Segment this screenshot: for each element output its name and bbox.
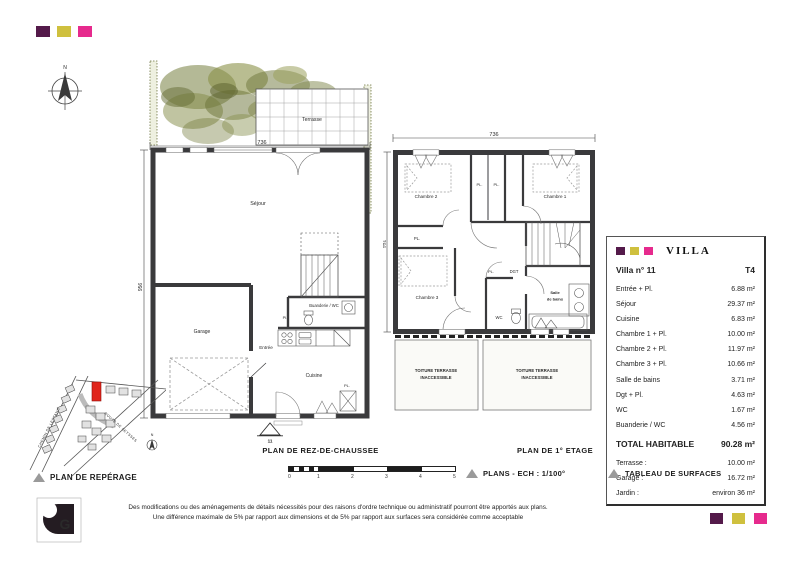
- row-value: 1.67 m²: [731, 407, 755, 414]
- table-row: Chambre 2 + Pl.11.97 m²: [616, 346, 755, 353]
- row-label: Jardin :: [616, 490, 639, 497]
- row-label: Chambre 3 + Pl.: [616, 361, 667, 368]
- extra-row: Terrasse :10.00 m²: [616, 460, 755, 467]
- row-value: 6.83 m²: [731, 316, 755, 323]
- toiture-right-line1: TOITURE TERRASSE: [516, 368, 558, 373]
- color-swatch-purple: [710, 513, 723, 524]
- color-swatch-purple: [616, 247, 625, 255]
- room-label-entree: Entrée: [259, 345, 273, 350]
- table-row: WC1.67 m²: [616, 407, 755, 414]
- row-value: 29.37 m²: [727, 301, 755, 308]
- scale-tick: 3: [385, 474, 388, 480]
- row-value: 10.66 m²: [727, 361, 755, 368]
- scale-tick: 5: [453, 474, 456, 480]
- ff-pl-c-label: PL.: [414, 236, 420, 241]
- triangle-icon: [608, 469, 620, 478]
- color-swatch-olive: [57, 26, 71, 37]
- terrace-label: Terrasse: [302, 117, 322, 123]
- caption-tableau-surfaces: TABLEAU DE SURFACES: [608, 469, 721, 478]
- terrace: Terrasse: [256, 89, 368, 145]
- villa-type: T4: [745, 266, 755, 275]
- row-label: WC: [616, 407, 628, 414]
- scale-tick: 2: [351, 474, 354, 480]
- caption-text: TABLEAU DE SURFACES: [625, 469, 721, 478]
- caption-text: PLAN DE REPÉRAGE: [50, 473, 137, 482]
- gf-height-dim-label: 956: [138, 283, 144, 292]
- total-row: TOTAL HABITABLE 90.28 m²: [616, 440, 755, 449]
- ff-height-dim-label: 951: [383, 240, 388, 249]
- room-label-dgt: DGT: [510, 269, 519, 274]
- ground-floor-plan: Terrasse 736 956 Séjour Garage: [138, 55, 390, 447]
- color-swatch-olive: [732, 513, 745, 524]
- row-value: 6.88 m²: [731, 286, 755, 293]
- compass-rose: N: [46, 62, 84, 114]
- color-swatch-magenta: [644, 247, 653, 255]
- gf-pl2-label: PL.: [344, 383, 350, 388]
- room-label-cuisine: Cuisine: [306, 373, 323, 379]
- ff-pl-b-label: PL.: [493, 182, 499, 187]
- logo-letter: G: [60, 516, 71, 532]
- color-swatch-olive: [630, 247, 639, 255]
- row-value: 4.56 m²: [731, 422, 755, 429]
- scale-bar-segment: [421, 467, 455, 471]
- room-label-chambre2: Chambre 2: [415, 194, 438, 199]
- disclaimer-line2: Une différence maximale de 5% par rappor…: [118, 513, 558, 523]
- legend-color-squares-bottom: [710, 513, 767, 524]
- first-floor-plan: 736 951: [383, 126, 607, 426]
- row-label: Séjour: [616, 301, 636, 308]
- ff-pl-a-label: PL.: [476, 182, 482, 187]
- villa-name: Villa n° 11: [616, 266, 656, 275]
- surface-table: VILLA Villa n° 11 T4 Entrée + Pl.6.88 m²…: [606, 236, 766, 506]
- row-label: Chambre 2 + Pl.: [616, 346, 667, 353]
- table-row: Séjour29.37 m²: [616, 301, 755, 308]
- row-value: 10.00 m²: [727, 460, 755, 467]
- row-label: Dgt + Pl.: [616, 392, 643, 399]
- room-label-sejour: Séjour: [250, 201, 266, 207]
- row-label: Terrasse :: [616, 460, 647, 467]
- row-label: Chambre 1 + Pl.: [616, 331, 667, 338]
- row-value: 3.71 m²: [731, 377, 755, 384]
- total-label: TOTAL HABITABLE: [616, 440, 694, 449]
- caption-plans-scale: PLANS - ECH : 1/100°: [466, 469, 565, 478]
- scale-bar-segment: [319, 467, 353, 471]
- extra-row: Jardin :environ 36 m²: [616, 490, 755, 497]
- color-swatch-magenta: [754, 513, 767, 524]
- row-value: 11.97 m²: [728, 346, 755, 353]
- scale-bar: 0 1 2 3 4 5: [288, 466, 456, 472]
- table-row: Chambre 3 + Pl.10.66 m²: [616, 361, 755, 368]
- site-buildings: [42, 385, 141, 454]
- table-row: Buanderie / WC4.56 m²: [616, 422, 755, 429]
- row-label: Entrée + Pl.: [616, 286, 653, 293]
- scale-tick: 4: [419, 474, 422, 480]
- scale-tick: 0: [288, 474, 291, 480]
- scale-bar-subdivisions: [289, 467, 319, 471]
- row-value: 10.00 m²: [727, 331, 755, 338]
- disclaimer-line1: Des modifications ou des aménagements de…: [118, 503, 558, 513]
- room-label-chambre3: Chambre 3: [416, 295, 439, 300]
- table-row: Salle de bains3.71 m²: [616, 377, 755, 384]
- row-value: environ 36 m²: [712, 490, 755, 497]
- triangle-icon: [466, 469, 478, 478]
- toiture-right-line2: INACCESSIBLE: [521, 375, 552, 380]
- total-value: 90.28 m²: [721, 440, 755, 449]
- row-label: Salle de bains: [616, 377, 660, 384]
- ff-width-dim-label: 736: [489, 132, 498, 138]
- caption-plan-reperage: PLAN DE REPÉRAGE: [33, 473, 137, 482]
- gf-pl-label: Pl.: [283, 315, 288, 320]
- site-compass: N: [147, 433, 157, 450]
- row-value: 4.63 m²: [731, 392, 755, 399]
- scale-bar-segment: [387, 467, 421, 471]
- legend-color-squares-top: [36, 26, 92, 37]
- brand-label: VILLA: [666, 245, 711, 257]
- room-label-buanderie: Buanderie / WC: [309, 303, 339, 308]
- room-label-wc: WC: [496, 315, 503, 320]
- toiture-terrasse-left: TOITURE TERRASSE INACCESSIBLE: [395, 340, 478, 410]
- compass-north-label: N: [63, 65, 67, 71]
- row-label: Buanderie / WC: [616, 422, 665, 429]
- surface-table-header: VILLA: [616, 245, 755, 257]
- scale-bar-segment: [353, 467, 387, 471]
- table-row: Entrée + Pl.6.88 m²: [616, 286, 755, 293]
- site-location-plan: CHEMIN DE LESTANG ROUTE DE SEYSSES N: [16, 376, 166, 478]
- villa-title-row: Villa n° 11 T4: [616, 266, 755, 275]
- gf-width-dim-label: 736: [257, 140, 266, 146]
- scale-tick: 1: [317, 474, 320, 480]
- caption-text: PLANS - ECH : 1/100°: [483, 469, 565, 478]
- first-floor-title: PLAN DE 1° ETAGE: [495, 446, 615, 455]
- color-swatch-magenta: [78, 26, 92, 37]
- table-row: Chambre 1 + Pl.10.00 m²: [616, 331, 755, 338]
- room-label-chambre1: Chambre 1: [544, 194, 567, 199]
- table-row: Dgt + Pl.4.63 m²: [616, 392, 755, 399]
- room-label-salle-1: Salle: [550, 290, 560, 295]
- row-value: 16.72 m²: [727, 475, 755, 482]
- toiture-terrasse-right: TOITURE TERRASSE INACCESSIBLE: [483, 340, 591, 410]
- room-label-garage: Garage: [194, 329, 211, 335]
- room-label-salle-2: de bains: [547, 297, 564, 302]
- toiture-left-line2: INACCESSIBLE: [420, 375, 451, 380]
- row-label: Cuisine: [616, 316, 639, 323]
- hedge-left: [150, 61, 157, 145]
- triangle-icon: [33, 473, 45, 482]
- disclaimer-text: Des modifications ou des aménagements de…: [118, 503, 558, 522]
- table-row: Cuisine6.83 m²: [616, 316, 755, 323]
- villa-marker: 11: [257, 423, 283, 444]
- developer-logo: G: [36, 497, 82, 543]
- ff-pl-d-label: PL.: [488, 269, 494, 274]
- ground-floor-title: PLAN DE REZ-DE-CHAUSSEE: [238, 446, 403, 455]
- color-swatch-purple: [36, 26, 50, 37]
- villa-marker-number: 11: [268, 439, 273, 444]
- ff-outer-walls: [396, 153, 593, 332]
- highlighted-villa-building: [92, 382, 101, 401]
- toiture-left-line1: TOITURE TERRASSE: [415, 368, 457, 373]
- site-compass-north-label: N: [151, 433, 154, 437]
